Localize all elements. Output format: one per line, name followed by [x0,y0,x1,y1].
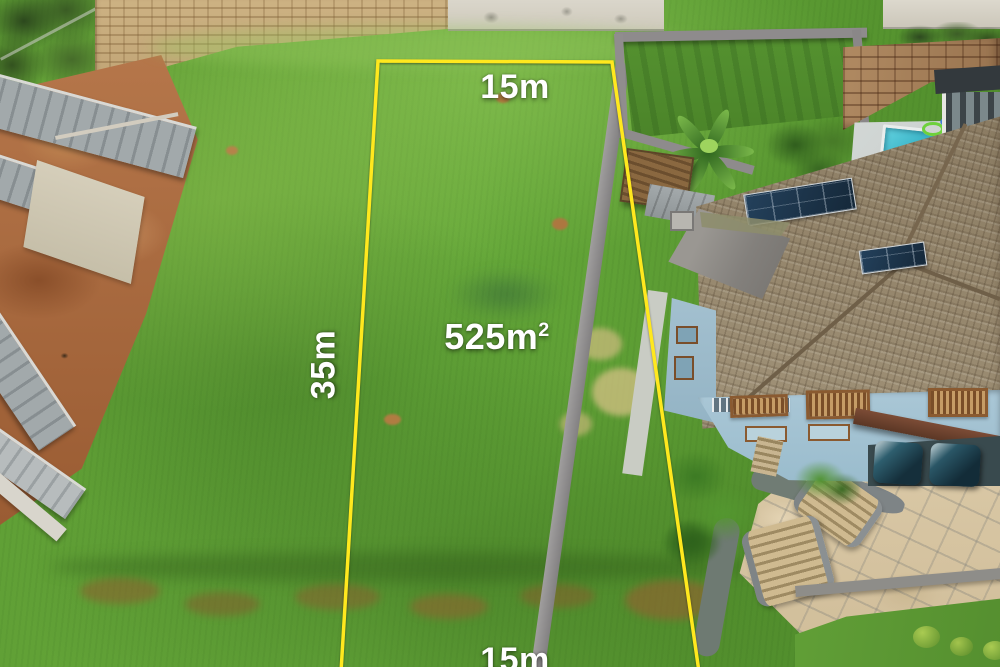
top-width-label: 15m [455,68,575,107]
aerial-photo: 15m 35m 525m2 15m [0,0,1000,667]
area-label: 525m2 [417,316,577,358]
area-superscript: 2 [538,319,550,341]
side-length-label: 35m [305,325,344,405]
bottom-width-label: 15m [455,641,575,667]
area-value: 525m [444,316,538,357]
